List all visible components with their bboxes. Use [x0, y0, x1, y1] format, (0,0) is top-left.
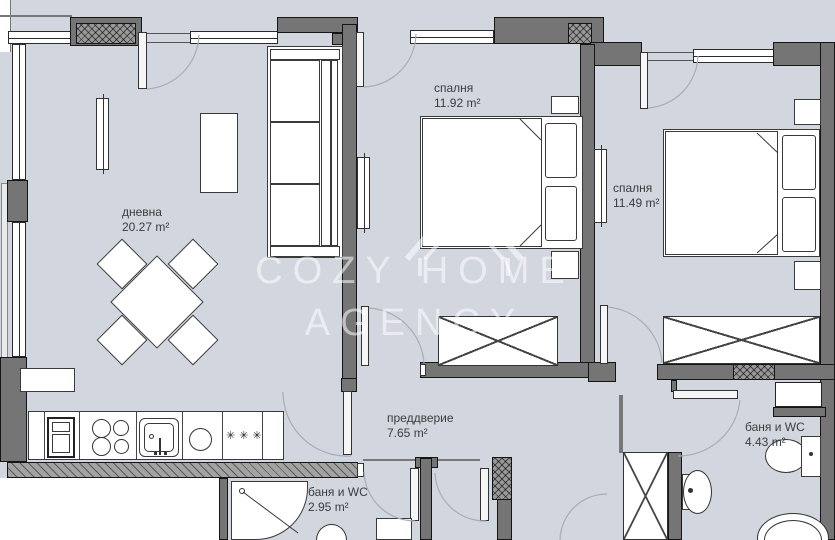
blanket-fold-line — [757, 133, 778, 153]
door-swing-arc — [283, 392, 351, 456]
door-swing-arc — [147, 35, 199, 89]
room-label-bedroom2: спалня 11.49 m² — [613, 181, 659, 211]
room-label-bath2: баня и WC 4.43 m² — [745, 420, 805, 450]
room-name: баня и WC — [308, 485, 368, 500]
room-label-bedroom1: спалня 11.92 m² — [434, 81, 480, 111]
watermark-text-line1: COZY HOME — [245, 250, 585, 293]
door-swing-arc — [678, 400, 740, 456]
door-swing-arc — [608, 307, 662, 363]
blanket-fold-line — [520, 225, 541, 246]
blanket-fold-line — [757, 234, 778, 253]
room-area: 11.49 m² — [613, 196, 659, 211]
room-label-hallway: преддверие 7.65 m² — [387, 411, 454, 441]
room-label-bath1: баня и WC 2.95 m² — [308, 485, 368, 515]
watermark-text-line2: AGENCY — [245, 302, 585, 345]
room-name: преддверие — [387, 411, 454, 426]
room-name: спалня — [613, 181, 659, 196]
shower-door-line — [243, 492, 298, 533]
room-area: 20.27 m² — [122, 220, 169, 235]
door-swing-arc — [364, 34, 416, 87]
door-swing-arc — [364, 472, 415, 521]
floor-plan: ✳✳✳ — [0, 0, 835, 540]
room-label-living: дневна 20.27 m² — [122, 205, 169, 235]
room-area: 2.95 m² — [308, 500, 368, 515]
room-name: спалня — [434, 81, 480, 96]
door-swing-arc — [435, 473, 486, 521]
room-name: баня и WC — [745, 420, 805, 435]
room-area: 7.65 m² — [387, 426, 454, 441]
blanket-fold-line — [520, 119, 541, 140]
room-area: 4.43 m² — [745, 435, 805, 450]
door-swing-arc — [648, 56, 698, 108]
room-area: 11.92 m² — [434, 96, 480, 111]
door-swing-arc — [560, 494, 607, 540]
room-name: дневна — [122, 205, 169, 220]
